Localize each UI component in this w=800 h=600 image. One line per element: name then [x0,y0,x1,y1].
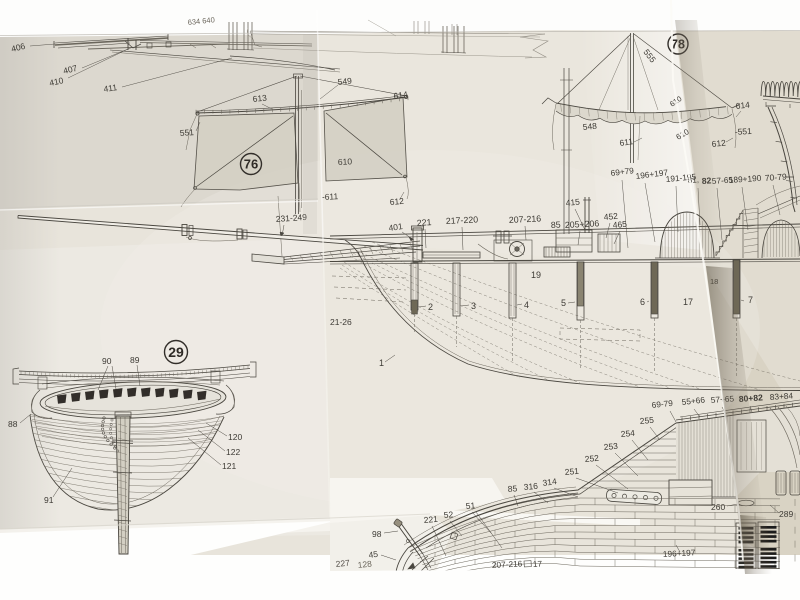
svg-text:549: 549 [337,76,352,87]
svg-text:289: 289 [779,509,793,519]
svg-text:1: 1 [379,358,384,368]
svg-text:19: 19 [531,270,541,280]
svg-text:221: 221 [423,514,438,525]
svg-text:253: 253 [603,441,618,452]
svg-text:612: 612 [389,196,404,207]
svg-text:401: 401 [388,221,404,233]
svg-text:260: 260 [711,502,725,512]
svg-text:88: 88 [8,419,18,429]
svg-text:85: 85 [551,219,561,230]
svg-text:551: 551 [179,127,194,138]
svg-text:3: 3 [471,301,476,311]
svg-text:207-216: 207-216 [492,558,523,570]
svg-text:548: 548 [582,121,597,132]
svg-text:255: 255 [639,415,654,426]
svg-text:121: 121 [222,461,236,471]
svg-text:89: 89 [130,355,140,365]
svg-text:411: 411 [103,82,118,94]
svg-text:227: 227 [335,558,350,569]
svg-text:21-26: 21-26 [330,317,352,327]
svg-text:17: 17 [683,297,693,307]
svg-text:316: 316 [523,481,538,492]
svg-text:83+84: 83+84 [769,390,793,402]
svg-text:76: 76 [244,157,258,172]
svg-text:120: 120 [228,432,242,442]
svg-text:196+197: 196+197 [663,547,696,559]
svg-text:122: 122 [226,447,240,457]
svg-text:4: 4 [524,300,529,310]
svg-text:221: 221 [416,217,431,228]
svg-text:5: 5 [561,298,566,308]
svg-text:91: 91 [44,495,54,505]
svg-text:17: 17 [533,559,543,569]
svg-text:614: 614 [393,89,409,101]
svg-text:207-216: 207-216 [509,213,542,225]
svg-text:7: 7 [748,295,753,305]
svg-text:29: 29 [168,344,184,360]
svg-text:52: 52 [443,509,454,520]
svg-text:98: 98 [372,529,382,539]
svg-text:128: 128 [357,559,372,570]
svg-text:90: 90 [102,356,112,366]
svg-text:465: 465 [612,219,627,230]
svg-text:2: 2 [428,302,433,312]
svg-text:314: 314 [542,476,558,488]
svg-text:-611: -611 [322,191,339,202]
svg-text:415: 415 [565,197,580,208]
svg-text:85: 85 [507,483,518,494]
svg-text:254: 254 [620,428,635,439]
svg-text:-551: -551 [734,126,752,137]
svg-text:51: 51 [465,500,476,511]
svg-text:217-220: 217-220 [446,214,479,226]
svg-text:6: 6 [640,297,645,307]
svg-text:251: 251 [564,466,579,477]
svg-text:613: 613 [252,93,267,104]
svg-text:611: 611 [619,136,634,148]
svg-text:614: 614 [735,100,750,111]
svg-text:252: 252 [584,453,599,464]
svg-text:612: 612 [711,138,726,149]
svg-text:70-79: 70-79 [764,171,787,183]
svg-text:610: 610 [338,156,353,167]
